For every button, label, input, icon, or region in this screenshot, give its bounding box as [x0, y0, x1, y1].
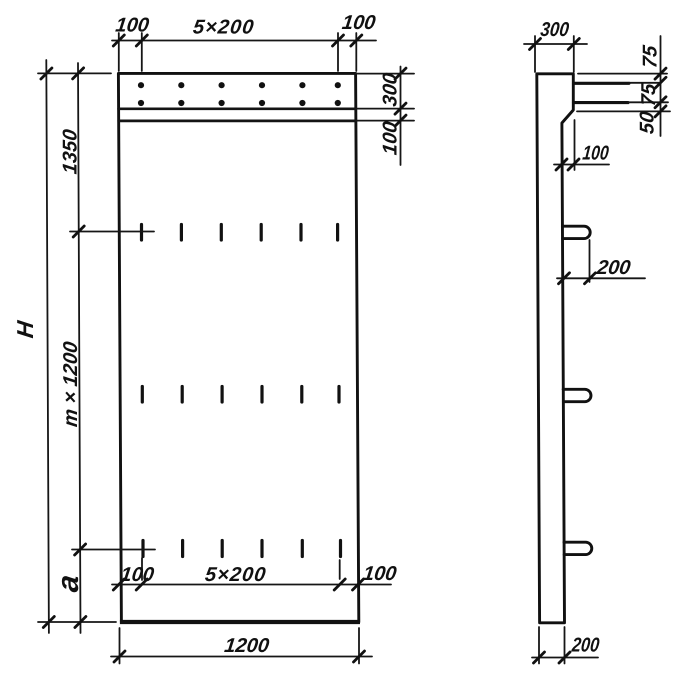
svg-text:75: 75 [638, 81, 660, 107]
svg-text:300: 300 [539, 18, 570, 41]
svg-text:200: 200 [570, 633, 601, 656]
svg-text:100: 100 [380, 120, 402, 156]
svg-text:1350: 1350 [60, 128, 82, 175]
svg-text:100: 100 [362, 563, 398, 585]
svg-text:m × 1200: m × 1200 [60, 340, 82, 428]
svg-text:300: 300 [380, 72, 402, 108]
svg-text:100: 100 [341, 12, 377, 34]
svg-text:5×200: 5×200 [204, 564, 268, 586]
svg-text:100: 100 [119, 564, 155, 586]
svg-text:5×200: 5×200 [192, 17, 256, 39]
svg-text:1200: 1200 [223, 635, 270, 657]
svg-text:100: 100 [114, 15, 150, 37]
svg-text:200: 200 [595, 257, 632, 279]
svg-text:50: 50 [637, 110, 659, 135]
svg-text:75: 75 [640, 43, 662, 69]
svg-text:100: 100 [582, 142, 610, 164]
